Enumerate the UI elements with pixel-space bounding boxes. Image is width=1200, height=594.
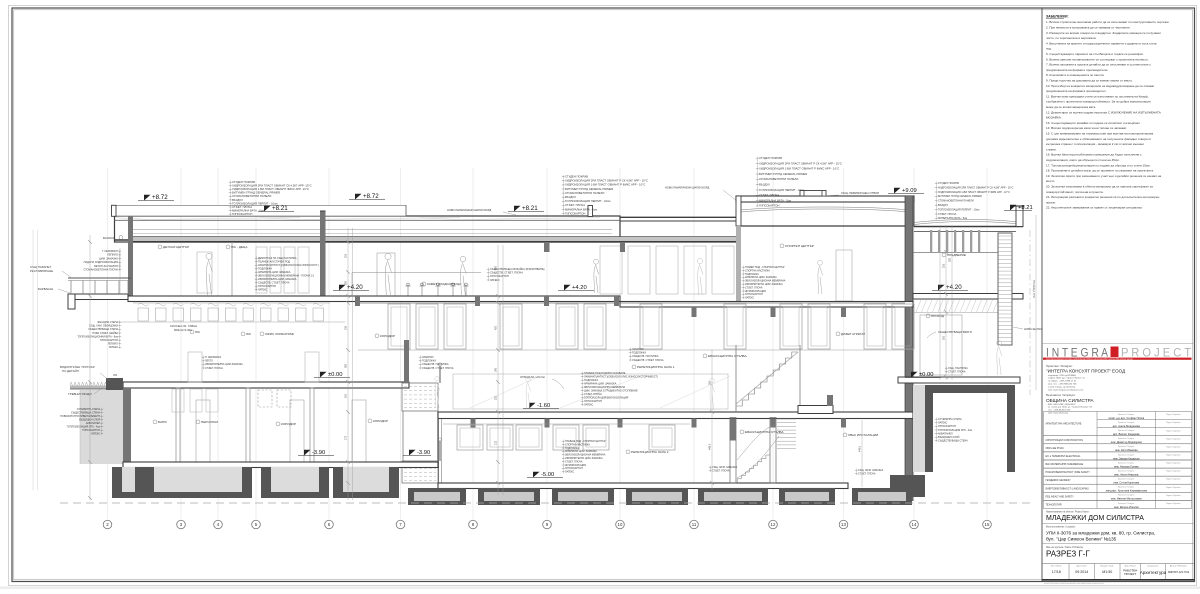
svg-text:±0.00: ±0.00 [328,372,342,378]
svg-text:Дата / Date:: Дата / Date: [1077,565,1088,568]
svg-text:Г. КЕРАМЗИТ: Г. КЕРАМЗИТ [102,249,118,253]
svg-text:15: 15 [985,522,990,527]
svg-text:17. Топлоизолация/шумоизолация: 17. Топлоизолация/шумоизолация по подове… [1046,163,1151,167]
svg-text:Наименование на обекта / Proje: Наименование на обекта / Project Name: [1046,511,1090,514]
svg-text:страни.: страни. [1046,147,1057,151]
svg-text:Подпис / Signature:: Подпис / Signature: [1166,486,1181,489]
svg-text:СЪЩ. КАМ. ОБЛИЦОВКА: СЪЩ. КАМ. ОБЛИЦОВКА [89,325,118,328]
svg-text:17/18: 17/18 [1052,570,1061,574]
svg-text:СТ.БЕТ. ПЛОЧА: СТ.БЕТ. ПЛОЧА [565,203,585,207]
svg-text:хидроизолация, която да обръща: хидроизолация, която да обръща по стени … [1046,158,1120,162]
svg-text:252: 252 [495,395,498,400]
svg-text:ВЪЗДУШЕН СЛОЙ: ВЪЗДУШЕН СЛОЙ [938,436,960,439]
svg-text:НОВА ШАПКА: НОВА ШАПКА [1024,327,1043,331]
svg-text:ДИЗЕЛ АГРЕГАТ: ДИЗЕЛ АГРЕГАТ [841,332,865,336]
svg-text:21. Интериорни разгъвки и конк: 21. Интериорни разгъвки и конкретни реше… [1046,195,1160,199]
svg-text:НОВА СТ.БЕТ. ШАЙБА: НОВА СТ.БЕТ. ШАЙБА [92,332,118,335]
svg-text:СЪЩ. НАСТИЛКА: СЪЩ. НАСТИЛКА [948,367,968,370]
svg-text:бул. "Цар Симеон Велики" №135: бул. "Цар Симеон Велики" №135 [1046,536,1117,541]
svg-text:ланд.арх. Христина Карамфилова: ланд.арх. Христина Карамфилова [1106,489,1148,493]
svg-text:15. С цел минимизиране на терм: 15. С цел минимизиране на термомостове п… [1046,132,1153,136]
svg-text:+4.20: +4.20 [946,284,962,291]
svg-text:КАФЕТ СЛАДКАРНИЦА: КАФЕТ СЛАДКАРНИЦА [427,282,462,286]
svg-text:ТОПЛОИЗОЛАЦИОННИ ВАТА - 8см: ТОПЛОИЗОЛАЦИОННИ ВАТА - 8см [77,335,118,338]
svg-text:Подпис / Signature:: Подпис / Signature: [1166,413,1181,416]
svg-text:СТ.БЕТ. ПЛОЧА: СТ.БЕТ. ПЛОЧА [948,371,966,374]
svg-text:360: 360 [345,363,348,368]
svg-text:София 1309, бул. "Христо Ботев: София 1309, бул. "Христо Ботев" 12 [1048,377,1086,380]
svg-text:БИТУМЕН ГРУНД GENERAL PRIMER: БИТУМЕН ГРУНД GENERAL PRIMER [232,191,280,195]
svg-text:Подпис / Signature:: Подпис / Signature: [1166,470,1181,473]
svg-text:22. Акустическите замервания с: 22. Акустическите замервания се правят о… [1046,206,1143,210]
svg-text:ГЕОДЕЗИЯ /GEODESY: ГЕОДЕЗИЯ /GEODESY [1046,480,1072,482]
svg-text:ХИДРОИЗОЛАЦИЯ 1-ВИ ПЛАСТ ОБМАН: ХИДРОИЗОЛАЦИЯ 1-ВИ ПЛАСТ ОБМАНТ ФИКС АРР… [232,187,309,191]
svg-text:ТОПЛОИЗОЛАЦИЯ ПЕРЛИТ - 10см: ТОПЛОИЗОЛАЦИЯ ПЕРЛИТ - 10см [938,208,980,211]
svg-text:инж. Катя Иванова: инж. Катя Иванова [1115,448,1138,452]
svg-text:проф. д-р арх. Стефан Попов: проф. д-р арх. Стефан Попов [1108,416,1144,420]
svg-text:П. КЕРАМИКА: П. КЕРАМИКА [205,356,221,359]
svg-text:СПОРТЕН ЦЕНТЪР: СПОРТЕН ЦЕНТЪР [785,244,814,248]
svg-text:ЛАТЕКС: ЛАТЕКС [565,471,574,474]
svg-text:5. Съществуващите парапети на: 5. Съществуващите парапети на стълбищата… [1046,52,1144,56]
svg-text:инж. Антон Николов: инж. Антон Николов [1114,472,1139,476]
svg-text:ЛАТЕКС: ЛАТЕКС [91,433,100,436]
svg-text:10. При избор на конкретни мат: 10. При избор на конкретни материали за … [1046,84,1155,88]
svg-text:Проектант / Designer:: Проектант / Designer: [1118,429,1135,432]
svg-text:СТОМАНОБЕТОННИ ПАНЕЛИ: СТОМАНОБЕТОННИ ПАНЕЛИ [938,200,974,203]
svg-text:ЕНЕРГ.ЕФЕКТИВНОСТ /LANDSCAPING: ЕНЕРГ.ЕФЕКТИВНОСТ /LANDSCAPING [1046,487,1090,490]
svg-text:ПРЕДВЕРИЕ: ПРЕДВЕРИЕ [947,253,966,257]
svg-text:14. Всички подпрозоречни касет: 14. Всички подпрозоречни касетъчни тялов… [1046,126,1127,130]
svg-text:ФАСАДНА СТЕНА: ФАСАДНА СТЕНА [97,321,118,324]
svg-text:СТ.БЕТ. ПЛОЧА: СТ.БЕТ. ПЛОЧА [712,470,730,473]
svg-text:КОРИДОР: КОРИДОР [373,419,388,423]
svg-text:БИТУМЕН ГРУНД GENERAL PRIMER: БИТУМЕН ГРУНД GENERAL PRIMER [565,187,613,191]
svg-text:4. Височината на вратите и под: 4. Височината на вратите и подпрозоречни… [1046,41,1157,45]
svg-text:1. Всички строително-монтажни: 1. Всички строително-монтажни работи да … [1046,20,1169,24]
svg-text:може да се вложи минерална ват: може да се вложи минерална вата. [1046,105,1096,109]
svg-text:-3.90: -3.90 [417,450,430,456]
svg-text:СТОМАНОБЕТОННА ПЛОЧА: СТОМАНОБЕТОННА ПЛОЧА [83,268,118,272]
svg-text:Проектант / Designer:: Проектант / Designer: [1118,413,1135,416]
svg-text:БАЛКОН: БАЛКОН [103,236,115,240]
svg-text:Специалност: Специалност [1147,566,1159,568]
svg-text:ЦИМ. ЗАМАЗКА: ЦИМ. ЗАМАЗКА [99,256,118,260]
svg-text:инж. Стела Кирилова: инж. Стела Кирилова [1113,481,1139,485]
svg-text:ЛАМИНАТ: ЛАМИНАТ [632,348,644,351]
svg-text:ТОПЛОИЗОЛАЦИЯ XPS - 4см: ТОПЛОИЗОЛАЦИЯ XPS - 4см [938,429,972,432]
svg-text:WC: WC [246,332,252,336]
svg-text:ЕВАКУАЦИОННА СТЪЛБА: ЕВАКУАЦИОННА СТЪЛБА [745,430,785,434]
svg-text:14: 14 [912,522,917,527]
svg-text:280: 280 [949,257,952,262]
svg-text:КОРИДОР: КОРИДОР [281,422,296,426]
svg-text:7. Всички заложени в проекта д: 7. Всички заложени в проекта детайли да … [1046,63,1151,67]
svg-text:СЪЩЕСТВУВАЩА СТЕНА: СЪЩЕСТВУВАЩА СТЕНА [88,328,118,331]
svg-text:Местоположение / Location:: Местоположение / Location: [1046,526,1076,529]
svg-text:web: www.silistra.bg: web: www.silistra.bg [1048,412,1068,415]
svg-text:20. За всички използвани в обе: 20. За всички използвани в обекта матери… [1046,185,1153,189]
svg-text:+8.21: +8.21 [272,205,288,212]
svg-text:ЗАБЕЛЕЖКИ:: ЗАБЕЛЕЖКИ: [1046,15,1069,19]
svg-text:ГИПСОКАРТОН: ГИПСОКАРТОН [565,211,585,215]
svg-text:ЛАТЕКС: ЛАТЕКС [584,404,594,407]
svg-text:НОВИ ЛАМАРИНЕНИ ШАПКИ БОРД: НОВИ ЛАМАРИНЕНИ ШАПКИ БОРД [665,186,709,190]
svg-text:11: 11 [692,522,697,527]
svg-text:чисто, по хоризонтала и вертик: чисто, по хоризонтала и вертикала. [1046,36,1097,40]
svg-text:272: 272 [345,435,348,440]
svg-text:МИНЕРАЛНА ВАТА - 5см: МИНЕРАЛНА ВАТА - 5см [759,198,791,202]
svg-text:ТОПЛОИЗОЛАЦИЯ ПЕРЛИТ - 10см: ТОПЛОИЗОЛАЦИЯ ПЕРЛИТ - 10см [565,199,611,203]
svg-text:КОРИДОР: КОРИДОР [380,334,395,338]
svg-text:место.: место. [1046,179,1055,183]
svg-text:РЕПЕТИЦИОННА ЗАЛА 1: РЕПЕТИЦИОННА ЗАЛА 1 [637,365,675,369]
svg-text:Проектант / Designer:: Проектант / Designer: [1118,421,1135,424]
svg-text:+9.09: +9.09 [902,188,917,194]
svg-text:ТОПЛОИЗОЛАЦИЯ ПЕРЛИТ - 10см: ТОПЛОИЗОЛАЦИЯ ПЕРЛИТ - 10см [759,188,805,192]
svg-text:Подпис / Signature:: Подпис / Signature: [1166,462,1181,465]
svg-text:ПОДЛОЖКА: ПОДЛОЖКА [632,352,646,355]
svg-text:ВЪЗДУХ: ВЪЗДУХ [565,195,576,199]
svg-text:420: 420 [495,325,498,330]
svg-text:280: 280 [345,280,348,285]
svg-text:Проектант / Designer:: Проектант / Designer: [1118,494,1135,497]
svg-text:арх. Виолет Кацарова: арх. Виолет Кацарова [1113,432,1140,436]
svg-text:СЪЩЕСТВ. НАСТИЛКА: СЪЩЕСТВ. НАСТИЛКА [632,355,659,358]
svg-text:Проектант / Designer:: Проектант / Designer: [1118,469,1135,472]
svg-text:ВЪЗДУХ: ВЪЗДУХ [232,198,243,202]
svg-text:РЕСТАВРИРАНЕ: РЕСТАВРИРАНЕ [30,269,53,273]
svg-text:Подпис / Signature:: Подпис / Signature: [1166,478,1181,481]
svg-text:Име на чертежа / Name of Drawi: Име на чертежа / Name of Drawing: [1046,546,1084,549]
svg-text:ТРЕВНИ ПЛОЩИ: ТРЕВНИ ПЛОЩИ [68,392,92,396]
svg-text:310: 310 [345,325,348,330]
svg-text:БАНЯ: БАНЯ [158,420,167,424]
svg-text:ХИДРОИЗОЛАЦИЯ 2РИ ПЛАСТ ОБМАНТ: ХИДРОИЗОЛАЦИЯ 2РИ ПЛАСТ ОБМАНТ Р СК 4,5К… [759,161,842,165]
svg-text:WC - ДЕЦА: WC - ДЕЦА [231,245,248,249]
svg-text:СТ.БЕТ. ПЛОЧА: СТ.БЕТ. ПЛОЧА [938,213,957,216]
svg-text:СЪЩЕСТВ. СТ.БЕТ. ПЛОЧА: СЪЩЕСТВ. СТ.БЕТ. ПЛОЧА [422,367,454,370]
svg-text:моб. тел.: +359-888-632 748: моб. тел.: +359-888-632 748 [1048,384,1077,386]
svg-text:М1:50: М1:50 [1102,570,1112,574]
svg-text:Мащаб / Scale:: Мащаб / Scale: [1101,566,1115,568]
svg-text:СЪЩЕСТВУВАЩА СТЕНА: СЪЩЕСТВУВАЩА СТЕНА [938,440,968,443]
svg-text:Проектант / Designer:: Проектант / Designer: [1118,445,1135,448]
svg-text:200: 200 [943,335,946,340]
svg-text:ПРОХОД: ПРОХОД [931,314,945,318]
svg-text:ГИПСОКАРТОН: ГИПСОКАРТОН [759,204,779,208]
svg-text:Архитектура: Архитектура [1140,570,1167,575]
svg-text:ОБЩИНА СИЛИСТРА: ОБЩИНА СИЛИСТРА [1046,398,1094,403]
svg-text:ПРОЕКТ: ПРОЕКТ [1124,572,1136,576]
svg-text:ПБЗ /HEALT AND SAFETY: ПБЗ /HEALT AND SAFETY [1046,495,1075,498]
svg-text:ОВиК ИНСТАЛАЦИИ: ОВиК ИНСТАЛАЦИИ [848,433,878,437]
svg-text:ХИДРОИЗОЛАЦИЯ 2РИ ПЛАСТ ОБМАНТ: ХИДРОИЗОЛАЦИЯ 2РИ ПЛАСТ ОБМАНТ Р СК 4,5К… [565,179,648,183]
svg-text:200: 200 [345,393,348,398]
svg-text:БЕТОН ЗА НАКЛОН: БЕТОН ЗА НАКЛОН [94,264,118,268]
svg-text:УПИ II-3076 за младежки дом, к: УПИ II-3076 за младежки дом, кв. 80, гр.… [1046,530,1155,535]
svg-text:3. Размерите на всички отвори: 3. Размерите на всички отвори са стандар… [1046,31,1162,35]
svg-text:ХИДРОИЗОЛАЦИЯ 2РИ ПЛАСТ ОБМАНТ: ХИДРОИЗОЛАЦИЯ 2РИ ПЛАСТ ОБМАНТ СК 4,5КГ … [232,184,312,188]
svg-text:гр. Силистра 7500, ул. "Симеон: гр. Силистра 7500, ул. "Симеон Велики" 3… [1048,407,1092,409]
svg-text:Проектант / Designer:: Проектант / Designer: [1118,502,1135,505]
svg-text:ЛАТЕКС: ЛАТЕКС [938,422,948,425]
svg-text:13: 13 [841,522,846,527]
svg-text:Проектант / Designer:: Проектант / Designer: [1118,461,1135,464]
svg-text:8. Ключалките в помещенията по: 8. Ключалките в помещенията по светли. [1046,73,1105,77]
svg-text:+4.20: +4.20 [572,285,587,291]
svg-text:ГИПСОКАРТОН: ГИПСОКАРТОН [232,212,252,216]
svg-text:ЛАТЕКС: ЛАТЕКС [490,278,500,282]
svg-text:МЛАДЕЖКИ ДОМ СИЛИСТРА: МЛАДЕЖКИ ДОМ СИЛИСТРА [1046,515,1144,522]
svg-text:"ИНТЕГРА КОНСУЛТ ПРОЕКТ" ЕООД: "ИНТЕГРА КОНСУЛТ ПРОЕКТ" ЕООД [1046,369,1125,374]
svg-text:09.2014: 09.2014 [1075,570,1088,574]
svg-text:СТУДЕН ПОКРИВ: СТУДЕН ПОКРИВ [759,156,782,160]
svg-text:СЪЩ. РЕВИЗИОНЕН ОТВОР: СЪЩ. РЕВИЗИОНЕН ОТВОР [841,191,879,195]
svg-text:ЕВАКУАЦИОННА СТЪЛБА: ЕВАКУАЦИОННА СТЪЛБА [708,354,748,358]
svg-text:2. При неясноти в котировката: 2. При неясноти в котировката да се заме… [1046,26,1131,30]
svg-text:-5.00: -5.00 [541,472,554,478]
svg-text:ХИДРОИЗОЛАЦИЯ 2РИ ПЛАСТ ОБМАНТ: ХИДРОИЗОЛАЦИЯ 2РИ ПЛАСТ ОБМАНТ Р СК 4,5К… [938,186,1014,189]
svg-text:инж. Евгени Игнатов: инж. Евгени Игнатов [1114,505,1139,509]
svg-text:СТ.БЕТ. ПЛОЧА: СТ.БЕТ. ПЛОЧА [759,193,779,197]
svg-text:КОНСТРУКЦИИ /CONSTRUCTION: КОНСТРУКЦИИ /CONSTRUCTION [1046,440,1084,442]
svg-text:255: 255 [943,263,946,268]
svg-text:19. За всички скрити при засне: 19. За всички скрити при заснемането уча… [1046,174,1161,178]
svg-text:+8.72: +8.72 [152,194,168,201]
svg-text:Подпис / Signature:: Подпис / Signature: [1166,437,1181,440]
svg-text:12: 12 [771,522,776,527]
svg-text:Подпис / Signature:: Подпис / Signature: [1166,454,1181,457]
svg-text:Проектант / Designer:: Проектант / Designer: [1046,364,1073,368]
svg-text:тел./факс: +359-2-988 17 52: тел./факс: +359-2-988 17 52 [1048,380,1077,383]
svg-text:+8.72: +8.72 [363,193,379,200]
svg-text:под.: под. [1046,47,1052,51]
svg-text:ДЕТСКИ ЦЕНТЪР: ДЕТСКИ ЦЕНТЪР [163,245,189,249]
svg-text:арх. Анета Младенова: арх. Анета Младенова [1113,424,1141,428]
svg-text:инж. Наташа Гулева: инж. Наташа Гулева [1114,464,1139,468]
svg-text:18. Приложените детайли могат: 18. Приложените детайли могат да се пром… [1046,169,1154,173]
svg-text:ЛЕГЛО: ЛЕГЛО [205,360,213,363]
svg-text:ПОЖАРОБЕЗОПАСНОСТ /FIRE SAFETY: ПОЖАРОБЕЗОПАСНОСТ /FIRE SAFETY [1046,471,1091,474]
svg-text:дограма задължително е облицов: дограма задължително е облицоването на п… [1046,137,1152,141]
svg-text:ПЕРСОНАЛ: ПЕРСОНАЛ [201,420,218,424]
svg-text:СТОМАНОБЕТОННИ ПАНЕЛИ: СТОМАНОБЕТОННИ ПАНЕЛИ [565,191,604,195]
svg-text:±0.00: ±0.00 [919,372,933,378]
svg-text:ЕЛ. и ТЕЛЕФОНИ /ELECTRICAL: ЕЛ. и ТЕЛЕФОНИ /ELECTRICAL [1046,455,1082,458]
svg-text:А4 кв.м / File Name:: А4 кв.м / File Name: [1170,565,1188,568]
svg-text:СТОМАНОБЕТОННИ ПАНЕЛИ: СТОМАНОБЕТОННИ ПАНЕЛИ [232,194,271,198]
svg-text:СТУДЕН ПОКРИВ: СТУДЕН ПОКРИВ [565,175,588,179]
svg-text:ЕИК / BULSTAT: 000565537: ЕИК / BULSTAT: 000565537 [1048,403,1076,406]
svg-text:МИНЕРАЛНА ВАТА - 5см: МИНЕРАЛНА ВАТА - 5см [938,217,967,220]
svg-text:450: 450 [495,265,498,270]
svg-text:инж. Димитър Миджорски: инж. Димитър Миджорски [1111,440,1143,444]
svg-text:ВиК /WATERSUPPLY&SEWERAGE: ВиК /WATERSUPPLY&SEWERAGE [1046,463,1084,466]
svg-text:Подпис / Signature:: Подпис / Signature: [1166,421,1181,424]
svg-text:ЛЕПИЛО: ЛЕПИЛО [107,253,118,257]
svg-text:212: 212 [495,440,498,445]
svg-text:АРХИТЕКТУРА /ARCHITECTURE: АРХИТЕКТУРА /ARCHITECTURE [1046,423,1082,426]
svg-text:БИТУМЕН ГРУНД GENERAL PRIMER: БИТУМЕН ГРУНД GENERAL PRIMER [938,195,982,198]
svg-text:ГРАНИЦА УПИ: ГРАНИЦА УПИ [1032,280,1036,298]
svg-text:ИЗРАВНИТЕЛНА ЦИМ ЗАМАЗКА: ИЗРАВНИТЕЛНА ЦИМ ЗАМАЗКА [205,363,243,366]
svg-text:12. Демонтират се всички подов: 12. Демонтират се всички подови настилки… [1046,110,1162,114]
svg-text:ЛАТЕКС: ЛАТЕКС [109,346,119,349]
svg-text:ОВИ и ЕЕ /HVAC: ОВИ и ЕЕ /HVAC [1046,447,1065,450]
svg-text:web: www.integraconsultproject: web: www.integraconsultproject.com [1048,388,1084,391]
svg-text:НОВИ ЛАМАРИНЕНИ ШАПКИ БОРД: НОВИ ЛАМАРИНЕНИ ШАПКИ БОРД [447,208,491,212]
svg-text:ГИПСОКАРТОН: ГИПСОКАРТОН [100,339,118,342]
svg-text:+4.20: +4.20 [347,284,363,291]
svg-text:проект.: проект. [1046,200,1056,204]
svg-text:+8.21: +8.21 [1018,205,1033,211]
svg-text:3%: 3% [113,373,118,377]
svg-text:СТУДЕН ПОКРИВ: СТУДЕН ПОКРИВ [232,180,255,184]
svg-text:-1.60: -1.60 [537,403,550,409]
svg-text:инж. Захари Кацарски: инж. Захари Кацарски [1113,456,1140,460]
svg-text:ЛАТЕКС: ЛАТЕКС [745,297,754,300]
svg-text:Подпис / Signature:: Подпис / Signature: [1166,494,1181,497]
svg-text:РЕПЕТИЦИОННА ЗАЛА 2: РЕПЕТИЦИОННА ЗАЛА 2 [631,450,669,454]
svg-text:9. Преди поръчка на дограмата: 9. Преди поръчка на дограмата да се взем… [1046,79,1133,83]
svg-text:390: 390 [495,367,498,372]
svg-text:Проектант / Designer:: Проектант / Designer: [1118,453,1135,456]
svg-text:СТ.БЕТ. ПЛОЧА: СТ.БЕТ. ПЛОЧА [205,367,223,370]
svg-text:пожароустойчивост, посочена в: пожароустойчивост, посочена в проекта. [1046,190,1104,194]
svg-text:Проектант / Designer:: Проектант / Designer: [1118,486,1135,489]
svg-text:Подпис / Signature:: Подпис / Signature: [1166,429,1181,432]
svg-text:ТЕХНОЛОГИЯ: ТЕХНОЛОГИЯ [1046,504,1062,506]
svg-text:-3.90: -3.90 [312,450,325,456]
svg-text:БИТУМЕН ГРУНД GENERAL PRIMER: БИТУМЕН ГРУНД GENERAL PRIMER [759,172,807,176]
svg-text:11. Всички нови преградни стен: 11. Всички нови преградни стени се изпъл… [1046,94,1149,98]
svg-text:16. Всички бани над необитаеми: 16. Всички бани над необитаеми помещения… [1046,153,1142,157]
svg-text:Подпис / Signature:: Подпис / Signature: [1166,502,1181,505]
svg-text:СЪЩЕСТВ. СТ.БЕТ. ПЛОЧА: СЪЩЕСТВ. СТ.БЕТ. ПЛОЧА [490,271,523,275]
svg-text:ЛЕПИЛО: ЛЕПИЛО [108,343,118,346]
svg-text:0997697.123.П.02: 0997697.123.П.02 [1168,570,1190,574]
svg-text:РАЗРЕЗ Г-Г: РАЗРЕЗ Г-Г [1046,549,1090,558]
svg-text:СЪЩЕСТВУВАЩИ ВРАТИ: СЪЩЕСТВУВАЩИ ВРАТИ [938,330,972,334]
svg-text:448.5: 448.5 [709,443,712,450]
svg-text:ОФИС ХОРЕОГРАФ: ОФИС ХОРЕОГРАФ [265,332,294,336]
svg-text:МОЗАЙКА .: МОЗАЙКА . [1046,116,1063,120]
svg-text:Подпис / Signature:: Подпис / Signature: [1166,445,1181,448]
svg-text:WC: WC [195,330,201,334]
svg-text:предписанията на фирмата произ: предписанията на фирмата производител. [1046,89,1107,93]
svg-text:ГИПСОКАРТОН: ГИПСОКАРТОН [490,274,509,278]
svg-text:ВЪЗДУХ: ВЪЗДУХ [759,183,770,187]
svg-text:Лист / Sheet:: Лист / Sheet: [1051,565,1063,568]
svg-text:инж. Ивелин Милославов: инж. Ивелин Милославов [1111,497,1142,501]
svg-text:Фаза / Phase:: Фаза / Phase: [1124,565,1136,568]
svg-text:+8.21: +8.21 [522,205,538,212]
svg-text:ПОДЛОЖКА: ПОДЛОЖКА [422,360,436,363]
svg-text:СТ.БЕТ. ПЛОЧА: СТ.БЕТ. ПЛОЧА [232,205,252,209]
svg-text:АКВАПАНЕЛ: АКВАПАНЕЛ [938,432,953,435]
svg-text:МИНЕРАЛНА ВАТА - 5см: МИНЕРАЛНА ВАТА - 5см [232,208,264,212]
svg-text:ТОПЛОИЗОЛАЦИЯ ПЕРЛИТ - 10см: ТОПЛОИЗОЛАЦИЯ ПЕРЛИТ - 10см [232,201,278,205]
svg-text:Проектант / Designer:: Проектант / Designer: [1118,437,1135,440]
svg-text:съобразени с проектната пожаро: съобразени с проектната пожароустойчивос… [1046,100,1151,104]
svg-text:255: 255 [345,253,348,258]
svg-text:ВЪЗДУХ: ВЪЗДУХ [938,204,948,207]
svg-text:Възложител / Employer:: Възложител / Employer: [1046,393,1076,397]
svg-text:седалище: 9700 гр.ШУМЕН: седалище: 9700 гр.ШУМЕН [1048,375,1076,377]
svg-text:448.5: 448.5 [859,445,862,452]
svg-text:БАРБАКАН: БАРБАКАН [38,287,53,291]
svg-text:МИН.Н=3.30м: МИН.Н=3.30м [174,328,192,332]
svg-text:МИНЕРАЛНА ВАТА - 5см: МИНЕРАЛНА ВАТА - 5см [565,207,597,211]
svg-text:СЪЩЕСТВ. СТ.БЕТ. ПЛОЧА: СЪЩЕСТВ. СТ.БЕТ. ПЛОЧА [632,359,664,362]
svg-text:ОГЛЕДАЛА, Н=2.0м: ОГЛЕДАЛА, Н=2.0м [520,375,545,379]
svg-text:ХИДРОИЗОЛАЦИЯ 1-ВИ ПЛАСТ ОБМАН: ХИДРОИЗОЛАЦИЯ 1-ВИ ПЛАСТ ОБМАНТ Р ФИМ АР… [938,191,1010,194]
svg-text:НАДАНА ХИДРОИЗОЛАЦИЯ: НАДАНА ХИДРОИЗОЛАЦИЯ [84,260,119,264]
svg-text:СЪЩЕСТВ. НАСТИЛКА: СЪЩЕСТВ. НАСТИЛКА [422,363,449,366]
svg-text:300: 300 [709,380,712,385]
svg-text:e-mail: integra_sys@abv.bg: e-mail: integra_sys@abv.bg [1048,385,1076,388]
svg-text:ХИДРОИЗОЛАЦИЯ 1-ВИ ПЛАСТ ОБМАН: ХИДРОИЗОЛАЦИЯ 1-ВИ ПЛАСТ ОБМАНТ Р ФИКС А… [565,183,645,187]
svg-text:10: 10 [618,522,623,527]
svg-text:СЪЩ. ШУМ. ЗАМАЗКА: СЪЩ. ШУМ. ЗАМАЗКА [712,466,738,469]
svg-text:ХИДРОИЗОЛАЦИЯ 1-ВИ ПЛАСТ ОБМАН: ХИДРОИЗОЛАЦИЯ 1-ВИ ПЛАСТ ОБМАНТ Р ФИКС А… [759,167,839,171]
svg-text:6. Всички цветове на материали: 6. Всички цветове на материалите се съгл… [1046,57,1149,61]
svg-text:вътрешна страна с топлоизолаци: вътрешна страна с топлоизолация - миниму… [1046,142,1144,146]
svg-text:предписанията на фирмите произ: предписанията на фирмите производители. [1046,68,1108,72]
svg-text:Проектант / Designer:: Проектант / Designer: [1118,478,1135,481]
svg-text:13. Съществуващите мозайки по: 13. Съществуващите мозайки по подове се … [1046,121,1140,125]
svg-text:ГИПСОКАРТОН: ГИПСОКАРТОН [938,425,956,428]
svg-text:ЛАТЕКС: ЛАТЕКС [258,289,268,292]
svg-text:СТУДЕН ПОКРИВ: СТУДЕН ПОКРИВ [938,182,959,185]
svg-text:СТОМАНОБЕТОННИ ПАНЕЛИ: СТОМАНОБЕТОННИ ПАНЕЛИ [759,177,798,181]
svg-text:СУТЕРЕННА СТЕНА: СУТЕРЕННА СТЕНА [938,418,962,421]
svg-text:ПО ДЕТАЙЛ: ПО ДЕТАЙЛ [62,369,79,373]
svg-text:ЛАМИНАТ: ЛАМИНАТ [422,356,434,359]
svg-text:СТ.БЕТ. ПЛОЧА: СТ.БЕТ. ПЛОЧА [858,473,876,476]
